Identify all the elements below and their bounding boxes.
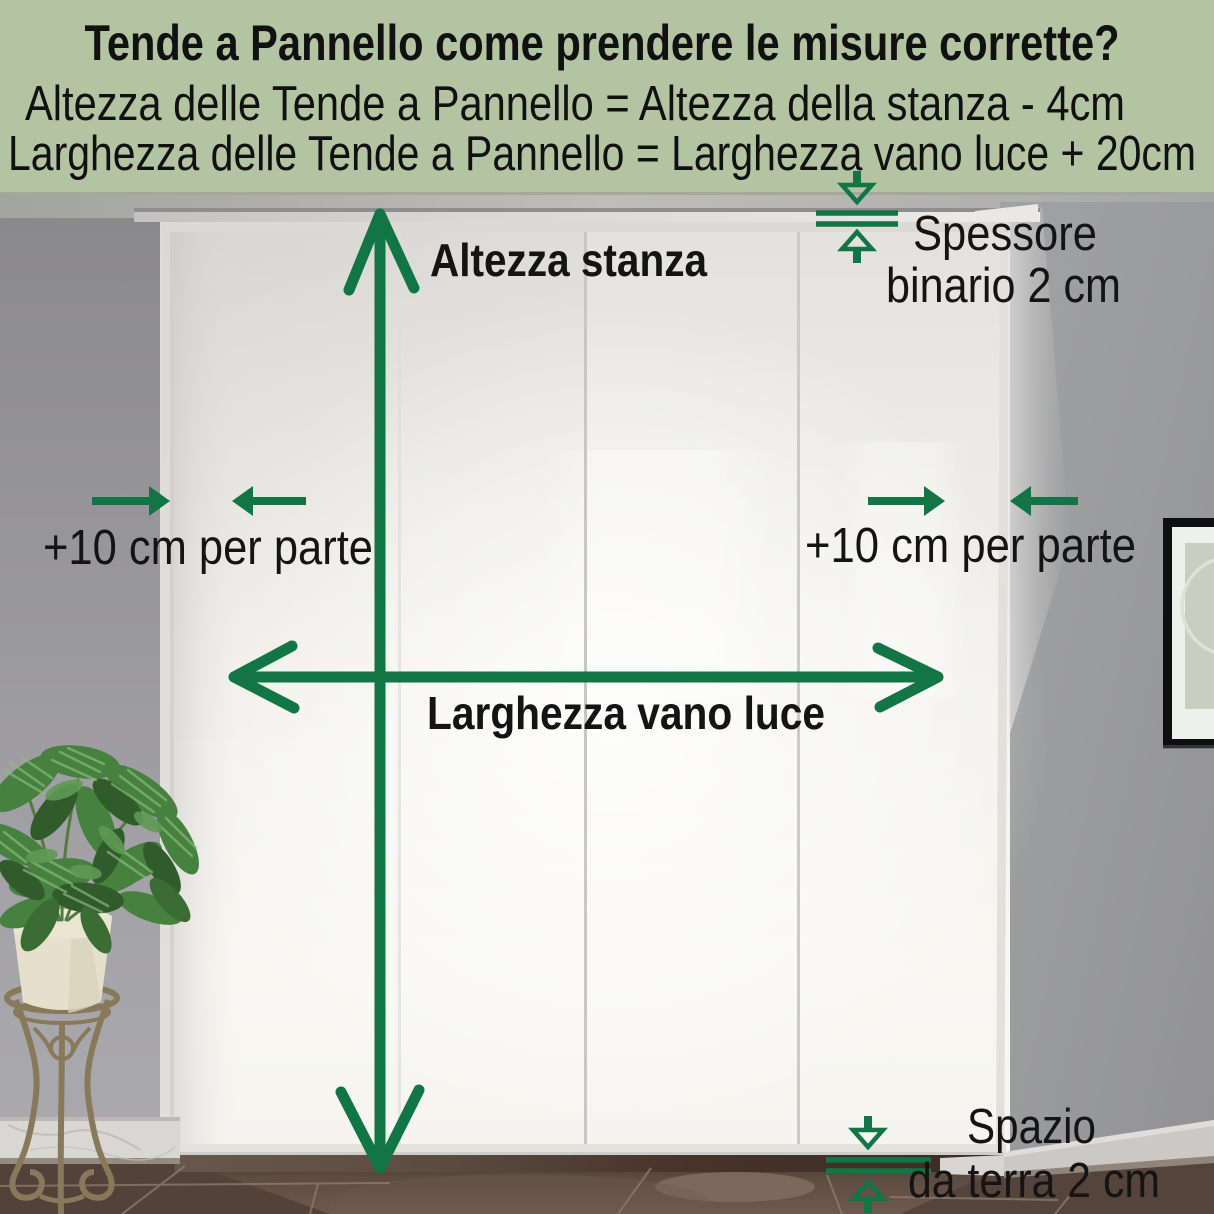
svg-text:Larghezza delle Tende a Pannel: Larghezza delle Tende a Pannello = Largh… <box>8 127 1196 181</box>
svg-text:Altezza delle Tende a Pannello: Altezza delle Tende a Pannello = Altezza… <box>25 77 1125 131</box>
svg-text:binario 2 cm: binario 2 cm <box>886 259 1121 313</box>
svg-text:+10 cm per parte: +10 cm per parte <box>43 521 373 575</box>
svg-text:Spessore: Spessore <box>913 207 1097 261</box>
svg-text:Larghezza vano luce: Larghezza vano luce <box>427 687 825 739</box>
svg-text:Tende a Pannello come prendere: Tende a Pannello come prendere le misure… <box>85 15 1120 71</box>
svg-text:Spazio: Spazio <box>967 1100 1096 1154</box>
svg-text:+10 cm per parte: +10 cm per parte <box>805 519 1136 573</box>
svg-text:Altezza stanza: Altezza stanza <box>430 234 707 286</box>
svg-text:da terra 2 cm: da terra 2 cm <box>908 1154 1160 1208</box>
